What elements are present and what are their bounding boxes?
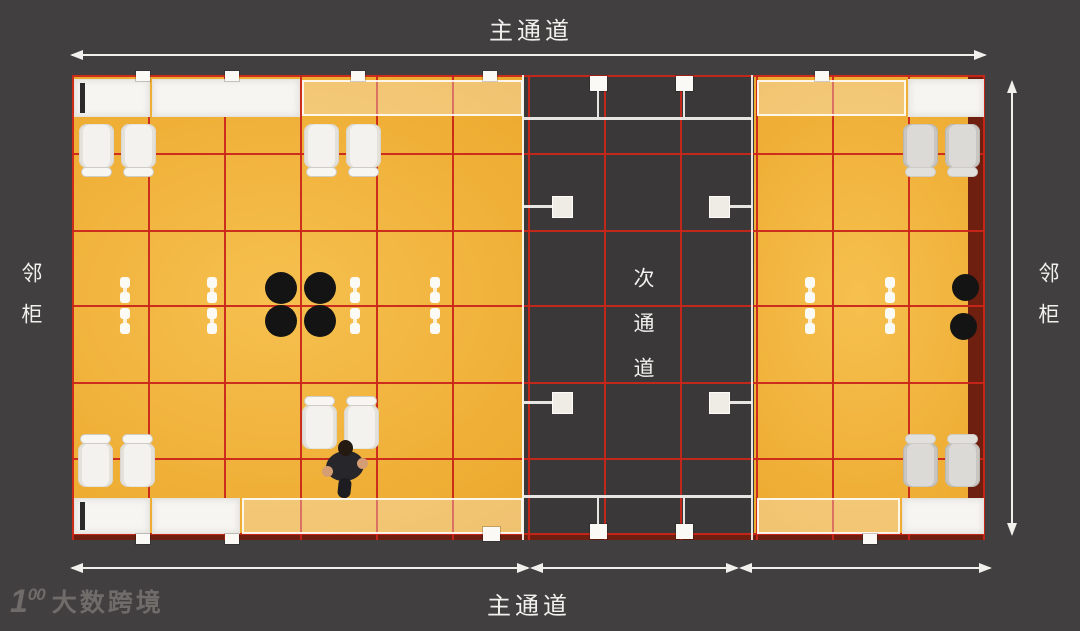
bottom-left-cabinet [74,498,150,534]
aisle-fixture [552,196,573,218]
bottle [430,308,440,334]
grid-line-vertical-9 [756,75,758,540]
watermark-logo-zeros: 00 [28,586,45,603]
grid-line-horizontal-3 [72,305,985,307]
arrow-left-icon [530,563,543,573]
person-arm-l [322,466,333,477]
bottom-dimension-line-middle [532,567,737,569]
floor-plan [72,75,985,540]
arrow-down-icon [1007,523,1017,536]
black-stool [950,313,977,340]
label-neighbor-left: 邻柜 [15,262,45,344]
bottle [120,277,130,303]
chair-back [123,167,154,177]
wall-post [815,71,829,81]
aisle-fixture-arm [524,205,552,208]
aisle-post-stem [597,91,599,117]
label-main-aisle-bottom: 主通道 [487,586,571,621]
aisle-fixture-arm [730,401,752,404]
booth-layout-diagram: 主通道 主通道 邻柜 邻柜 次通道 100 大数跨境 [0,0,1080,631]
chair-back [947,167,978,177]
top-left-shelf [302,80,523,116]
chair-back [905,434,936,444]
grid-line-horizontal-5 [72,458,985,460]
right-dimension-line [1011,82,1013,534]
wall-post [483,71,497,81]
bottle [207,308,217,334]
aisle-top-beam [524,117,752,120]
bottom-left-shelf [242,498,523,534]
black-stool [265,305,297,337]
arrow-right-icon [726,563,739,573]
grid-line-horizontal-2 [72,230,985,232]
bottle [430,277,440,303]
wall-post [136,71,150,81]
watermark-logo-icon: 100 [10,585,45,617]
aisle-bottom-beam [524,495,752,498]
chair [120,443,155,487]
top-left-counter [152,79,300,117]
grid-line-vertical-0 [72,75,74,540]
black-stool [304,272,336,304]
bottle [350,277,360,303]
grid-line-vertical-12 [983,75,985,540]
chair-back [80,434,111,444]
grid-line-vertical-10 [832,75,834,540]
label-main-aisle-top: 主通道 [489,11,573,46]
person-arm-r [357,458,368,469]
top-left-cabinet-slot [80,83,85,113]
watermark-text: 大数跨境 [52,583,164,619]
grid-line-horizontal-0 [72,75,985,77]
bottom-left-counter [152,498,240,534]
bottle [350,308,360,334]
arrow-left-icon [70,50,83,60]
chair-back [947,434,978,444]
bottom-dimension-line-right [741,567,990,569]
aisle-left-wall [522,75,524,540]
aisle-fixture [709,392,730,414]
aisle-fixture-arm [730,205,752,208]
chair [121,124,156,168]
wall-post [351,71,365,81]
chair [945,443,980,487]
grid-line-vertical-7 [604,75,606,540]
chair [903,443,938,487]
bottle [120,308,130,334]
aisle-fixture [709,196,730,218]
bottle [207,277,217,303]
chair-back [81,167,112,177]
person-head [338,440,353,456]
arrow-up-icon [1007,80,1017,93]
bottom-right-cabinet [902,498,984,534]
grid-line-horizontal-1 [72,153,985,155]
bottle [885,308,895,334]
watermark-logo-one: 1 [10,585,28,617]
wall-post [136,534,150,544]
chair [304,124,339,168]
aisle-post-bottom-left [590,524,607,539]
aisle-fixture [552,392,573,414]
aisle-post-stem [597,498,599,524]
arrow-right-icon [979,563,992,573]
chair [346,124,381,168]
aisle-post-stem [683,498,685,524]
chair-back [346,396,377,406]
black-stool [952,274,979,301]
arrow-right-icon [974,50,987,60]
aisle-post-top-left [590,76,607,91]
bottle [805,277,815,303]
label-secondary-aisle: 次通道 [627,267,657,402]
top-right-shelf [757,80,906,116]
arrow-left-icon [739,563,752,573]
bottle [805,308,815,334]
grid-line-vertical-6 [528,75,530,540]
chair [79,124,114,168]
wall-post [863,534,877,544]
arrow-left-icon [70,563,83,573]
wall-post [225,71,239,81]
arrow-right-icon [517,563,530,573]
black-stool [265,272,297,304]
chair-back [348,167,379,177]
chair [945,124,980,168]
top-right-cabinet [908,79,984,117]
wall-post [225,534,239,544]
grid-line-horizontal-4 [72,382,985,384]
chair-back [306,167,337,177]
bottom-right-shelf [757,498,900,534]
aisle-post-stem [683,91,685,117]
bottle [885,277,895,303]
grid-line-vertical-2 [224,75,226,540]
black-stool [304,305,336,337]
top-left-cabinet [74,79,150,117]
top-dimension-line [72,54,985,56]
aisle-post-top-right [676,76,693,91]
aisle-right-wall [751,75,753,540]
person [323,440,367,498]
bottom-dimension-line-left [72,567,528,569]
chair [903,124,938,168]
wall-post [483,527,500,541]
label-neighbor-right: 邻柜 [1032,262,1062,344]
chair-back [905,167,936,177]
aisle-fixture-arm [524,401,552,404]
watermark: 100 大数跨境 [10,583,164,619]
chair-back [122,434,153,444]
grid-line-vertical-8 [680,75,682,540]
grid-line-vertical-5 [452,75,454,540]
chair-back [304,396,335,406]
aisle-post-bottom-right [676,524,693,539]
bottom-left-cabinet-slot [80,502,85,530]
person-leg [337,477,352,498]
chair [78,443,113,487]
grid-line-vertical-3 [300,75,302,540]
